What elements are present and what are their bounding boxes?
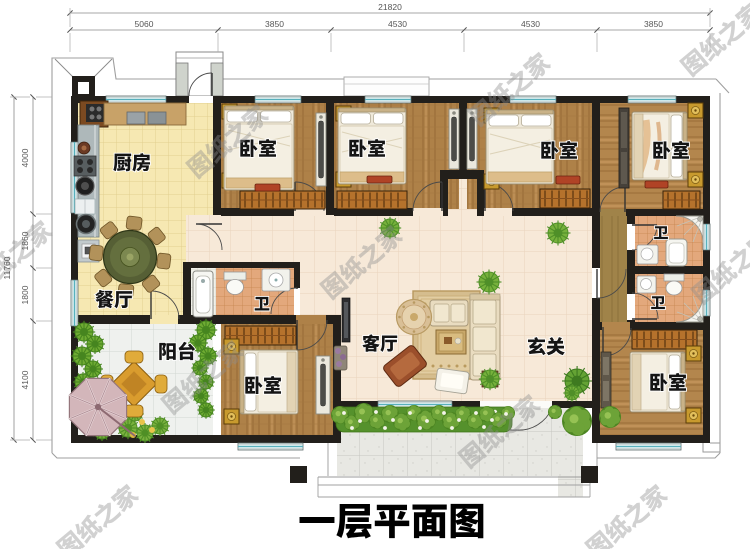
- svg-text:4530: 4530: [388, 19, 407, 29]
- svg-text:21820: 21820: [378, 2, 402, 12]
- svg-text:3850: 3850: [265, 19, 284, 29]
- svg-text:4000: 4000: [20, 148, 30, 167]
- svg-text:5060: 5060: [135, 19, 154, 29]
- svg-text:1800: 1800: [20, 285, 30, 304]
- svg-text:3850: 3850: [644, 19, 663, 29]
- svg-text:4530: 4530: [521, 19, 540, 29]
- svg-text:4100: 4100: [20, 370, 30, 389]
- svg-text:1860: 1860: [20, 231, 30, 250]
- svg-text:11760: 11760: [2, 256, 12, 279]
